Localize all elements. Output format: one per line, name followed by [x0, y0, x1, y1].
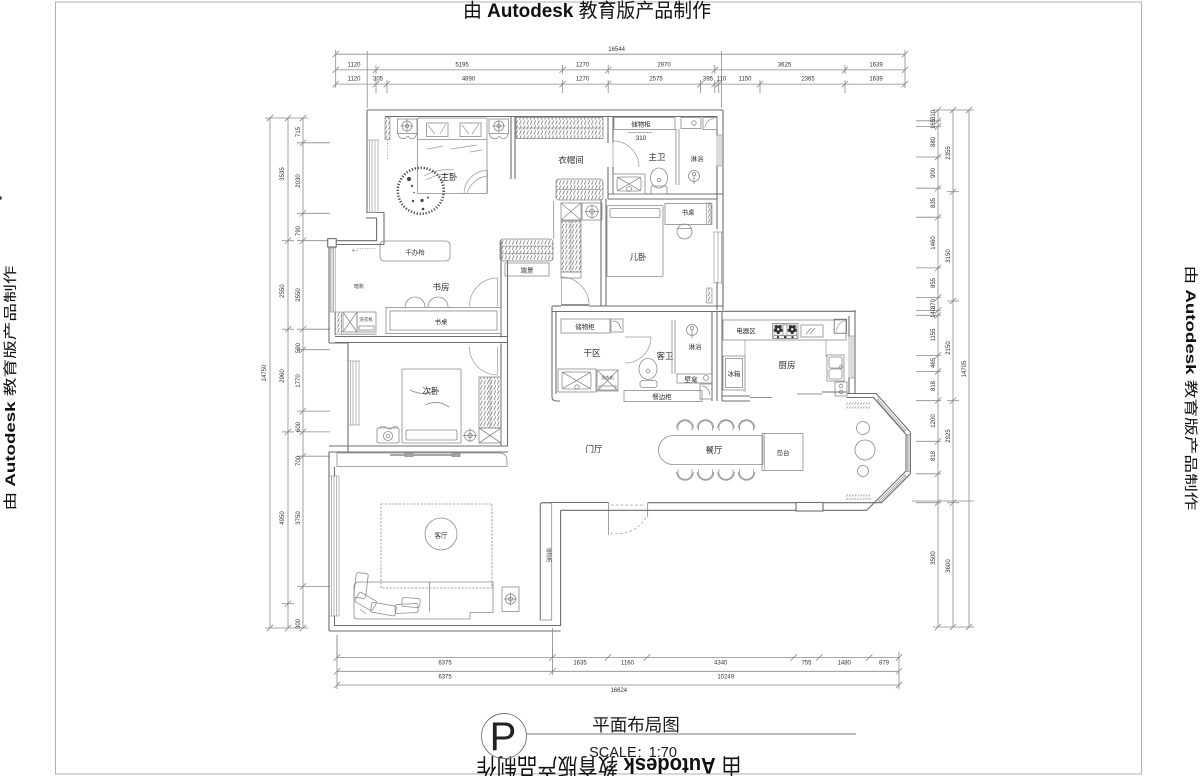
svg-text:6375: 6375 [438, 661, 452, 667]
svg-text:1270: 1270 [576, 77, 590, 83]
svg-text:由 Autodesk 教育版产品制作: 由 Autodesk 教育版产品制作 [1183, 266, 1198, 511]
svg-text:4340: 4340 [714, 661, 728, 667]
svg-text:1639: 1639 [869, 63, 883, 69]
svg-text:465: 465 [931, 357, 937, 368]
svg-text:2925: 2925 [946, 429, 952, 443]
svg-text:755: 755 [801, 661, 812, 667]
svg-text:壁龛: 壁龛 [685, 375, 699, 384]
svg-text:端景: 端景 [521, 266, 535, 275]
svg-text:3750: 3750 [296, 511, 302, 525]
svg-text:洗衣机: 洗衣机 [601, 374, 614, 381]
svg-text:2550: 2550 [296, 288, 302, 302]
svg-text:818: 818 [931, 380, 937, 391]
svg-text:1120: 1120 [348, 77, 362, 83]
svg-text:客厅: 客厅 [435, 531, 449, 540]
svg-text:1480: 1480 [838, 661, 852, 667]
svg-text:880: 880 [931, 136, 937, 147]
svg-text:由 Autodesk 教育版产品制作: 由 Autodesk 教育版产品制作 [463, 0, 711, 22]
svg-text:715: 715 [296, 126, 302, 137]
svg-text:淋浴: 淋浴 [691, 154, 705, 163]
svg-text:700: 700 [296, 455, 302, 466]
svg-text:储物柜: 储物柜 [631, 120, 651, 129]
svg-text:2550: 2550 [280, 284, 286, 298]
svg-text:电器区: 电器区 [736, 326, 756, 335]
svg-text:1160: 1160 [621, 661, 635, 667]
svg-text:餐边柜: 餐边柜 [652, 392, 672, 401]
svg-text:395: 395 [703, 77, 714, 83]
svg-text:3600: 3600 [946, 559, 952, 573]
svg-text:3500: 3500 [931, 551, 937, 565]
svg-text:厨房: 厨房 [778, 360, 795, 370]
svg-text:1635: 1635 [573, 661, 587, 667]
svg-text:6375: 6375 [438, 674, 452, 680]
svg-text:1639: 1639 [869, 77, 883, 83]
svg-text:2960: 2960 [280, 369, 286, 383]
svg-text:879: 879 [879, 661, 890, 667]
svg-text:SCALE：1:70: SCALE：1:70 [589, 745, 677, 761]
svg-text:岛台: 岛台 [777, 448, 790, 457]
svg-text:储物柜: 储物柜 [575, 322, 595, 331]
svg-text:3625: 3625 [778, 63, 792, 69]
svg-text:16624: 16624 [610, 688, 627, 694]
svg-text:2575: 2575 [649, 77, 663, 83]
svg-text:590: 590 [296, 342, 302, 353]
svg-text:2355: 2355 [946, 146, 952, 160]
svg-text:310: 310 [931, 109, 937, 120]
svg-text:主卧: 主卧 [440, 172, 458, 182]
svg-text:1200: 1200 [931, 414, 937, 428]
svg-text:2150: 2150 [946, 341, 952, 355]
svg-text:2030: 2030 [296, 174, 302, 188]
svg-text:370: 370 [931, 298, 937, 309]
svg-text:1120: 1120 [348, 63, 362, 69]
svg-text:110: 110 [717, 77, 727, 83]
svg-text:1155: 1155 [931, 328, 937, 342]
svg-text:900: 900 [931, 167, 937, 178]
svg-text:305: 305 [373, 77, 384, 83]
svg-text:餐厅: 餐厅 [705, 445, 723, 455]
svg-text:4890: 4890 [462, 77, 476, 83]
svg-text:干区: 干区 [583, 348, 601, 358]
svg-text:140: 140 [931, 307, 937, 318]
svg-text:818: 818 [931, 450, 937, 461]
svg-text:790: 790 [296, 225, 302, 236]
svg-text:310: 310 [636, 135, 647, 142]
svg-text:2365: 2365 [801, 77, 815, 83]
svg-text:平面布局图: 平面布局图 [592, 715, 680, 735]
svg-text:3535: 3535 [280, 167, 286, 181]
svg-text:由 Autodesk 教育版产品制作: 由 Autodesk 教育版产品制作 [3, 266, 18, 511]
svg-text:5195: 5195 [455, 63, 469, 69]
svg-text:客卫: 客卫 [656, 351, 674, 361]
svg-text:835: 835 [931, 197, 937, 208]
svg-text:855: 855 [931, 277, 937, 288]
svg-text:淋浴: 淋浴 [689, 342, 703, 351]
svg-text:1770: 1770 [296, 374, 302, 388]
svg-text:600: 600 [296, 421, 302, 432]
svg-text:衣帽间: 衣帽间 [558, 155, 584, 165]
svg-text:300: 300 [296, 618, 302, 629]
svg-text:2970: 2970 [657, 63, 671, 69]
svg-text:165: 165 [931, 118, 937, 129]
svg-text:P: P [490, 715, 517, 759]
svg-text:储物柜: 储物柜 [545, 547, 552, 562]
svg-text:1460: 1460 [931, 236, 937, 250]
svg-text:次卧: 次卧 [422, 386, 440, 396]
svg-text:冰箱: 冰箱 [728, 369, 742, 378]
svg-text:洗衣机: 洗衣机 [359, 316, 373, 323]
svg-text:门厅: 门厅 [585, 444, 603, 454]
svg-text:书房: 书房 [432, 282, 449, 292]
svg-text:14705: 14705 [962, 360, 968, 377]
svg-text:10249: 10249 [717, 674, 734, 680]
svg-text:3150: 3150 [946, 249, 952, 263]
svg-text:1270: 1270 [576, 63, 590, 69]
svg-text:千办枱: 千办枱 [405, 248, 425, 257]
svg-text:书桌: 书桌 [435, 317, 449, 326]
svg-text:主卫: 主卫 [648, 152, 666, 162]
svg-text:4950: 4950 [280, 511, 286, 525]
svg-text:1150: 1150 [739, 77, 753, 83]
svg-text:暗账: 暗账 [354, 283, 364, 290]
svg-text:14750: 14750 [262, 364, 268, 381]
svg-text:儿卧: 儿卧 [629, 252, 647, 262]
svg-text:16544: 16544 [608, 47, 625, 53]
svg-text:书桌: 书桌 [682, 208, 696, 217]
